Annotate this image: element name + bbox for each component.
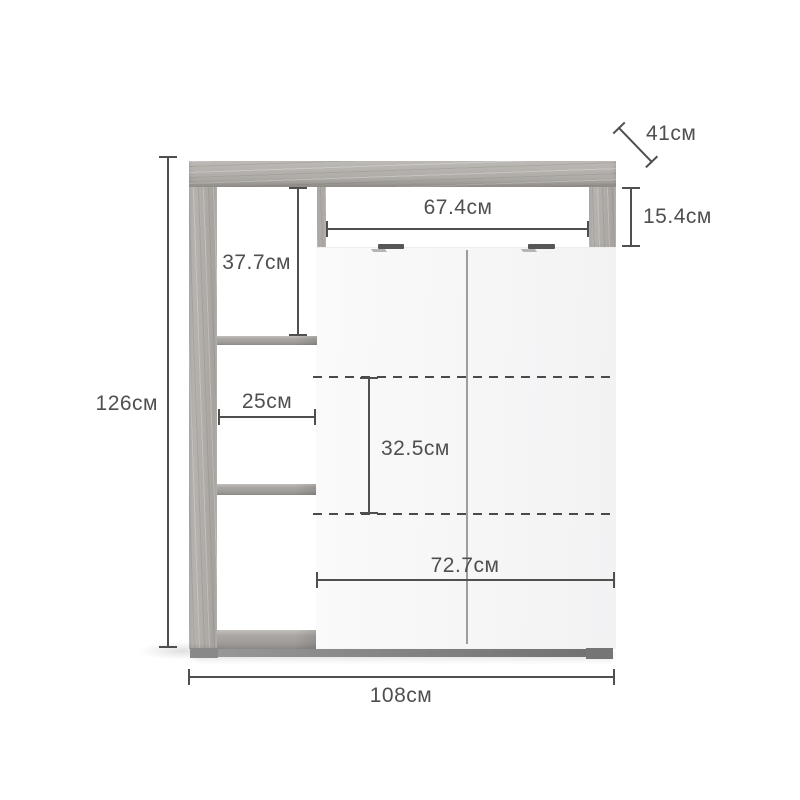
cabinet-right-side-panel (589, 187, 616, 247)
cabinet-partition-panel (317, 187, 326, 247)
diagram-canvas: 126см 37.7см 25см 67.4см 15.4см 41см 32.… (0, 0, 800, 800)
dim-upper-left-height-label: 37.7см (222, 251, 291, 275)
dim-total-height-label: 126см (96, 392, 158, 416)
cabinet-left-side-panel (189, 187, 217, 649)
dim-top-right-height-label: 15.4см (643, 205, 712, 229)
dim-total-height-line (167, 156, 169, 648)
dim-total-width-label: 108см (370, 684, 432, 708)
door-handle-right-base (521, 249, 537, 252)
dim-mid-section-height-line (368, 377, 370, 514)
dim-niche-width-label: 67.4см (424, 196, 493, 220)
dim-depth-label: 41см (646, 122, 696, 146)
section-dashed-line-lower (313, 513, 616, 515)
foot-left (190, 648, 218, 658)
dim-top-right-height-line (630, 187, 632, 247)
dim-doors-width-line (316, 579, 615, 581)
dim-doors-width-label: 72.7см (431, 554, 500, 578)
door-handle-right-icon (528, 244, 555, 249)
shelf-bottom (217, 630, 316, 649)
door-gap-line (466, 250, 468, 644)
section-dashed-line-upper (313, 376, 616, 378)
plinth-bar (195, 649, 613, 657)
door-handle-left-icon (378, 244, 404, 249)
door-handle-left-base (371, 249, 387, 252)
dim-total-width-line (188, 676, 615, 678)
foot-right (586, 648, 613, 659)
cabinet-top-panel (189, 161, 616, 187)
dim-upper-left-height-line (297, 187, 299, 336)
dim-shelf-width-line (218, 416, 316, 418)
dim-shelf-width-label: 25см (242, 390, 292, 414)
shelf-top (217, 336, 317, 345)
dim-niche-width-line (326, 228, 589, 230)
dim-mid-section-height-label: 32.5см (381, 437, 450, 461)
shelf-middle (217, 484, 316, 495)
